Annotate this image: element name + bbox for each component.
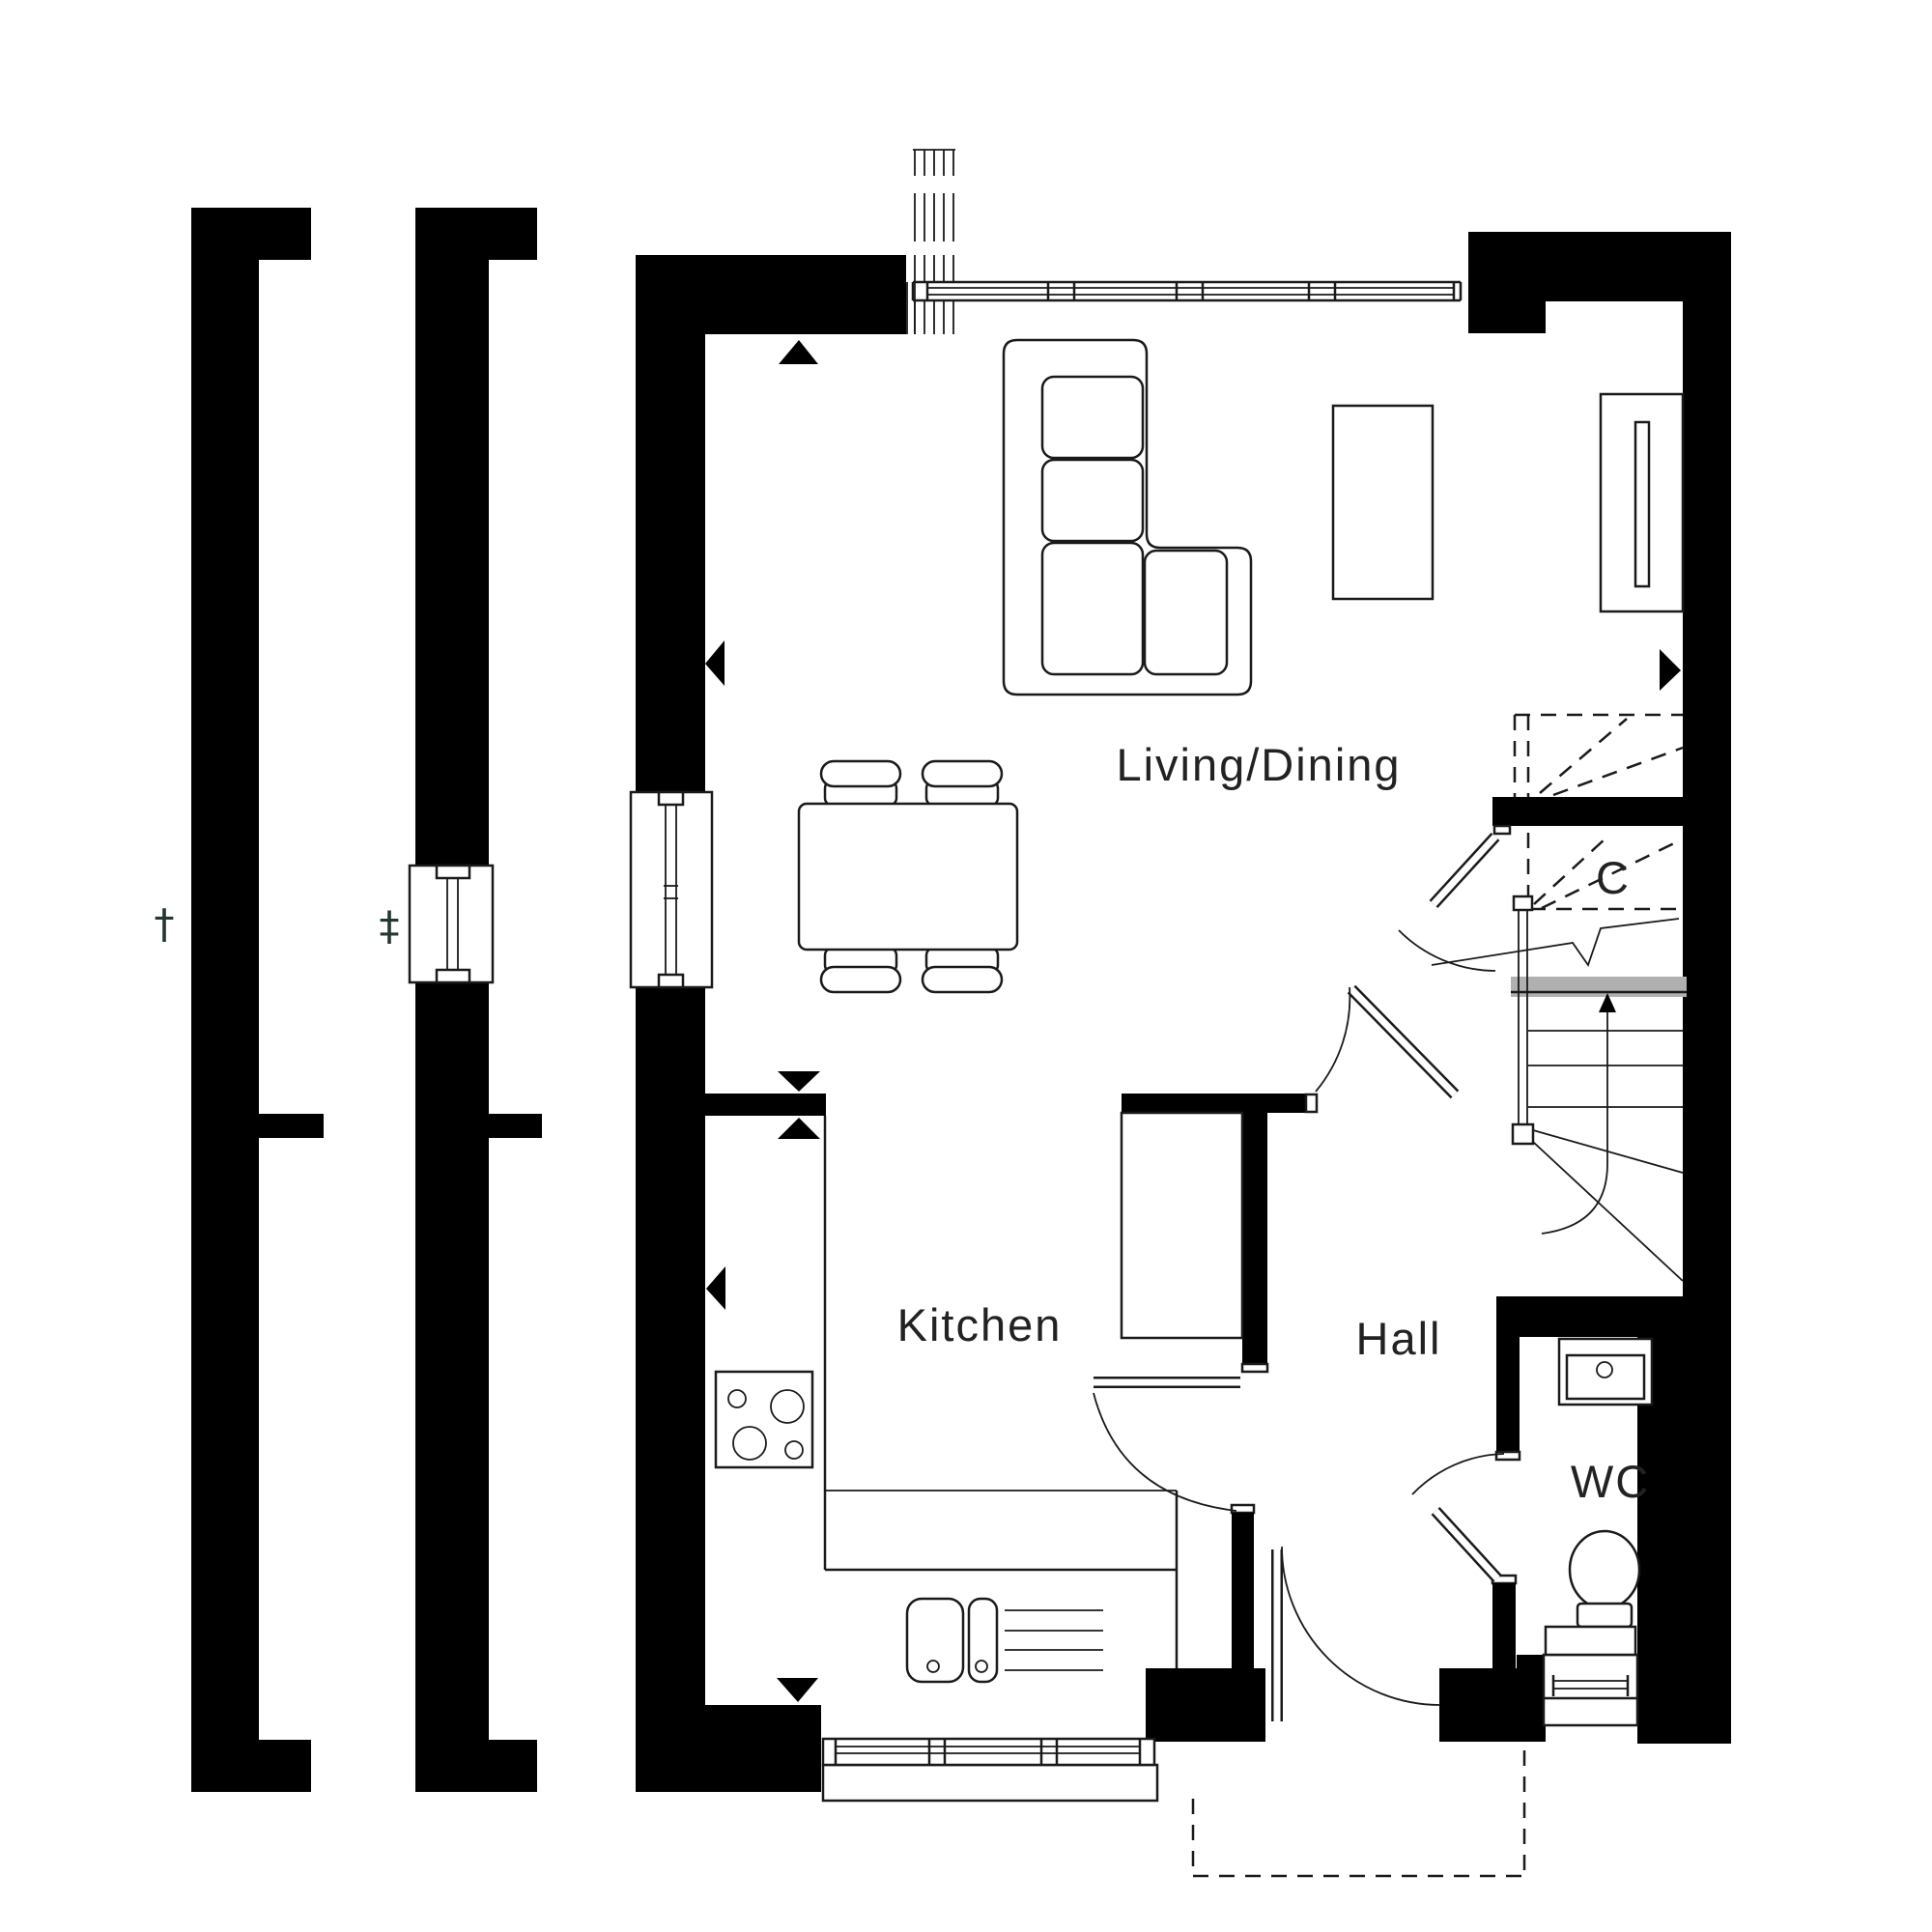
marker-left-wall-lower — [706, 1266, 725, 1310]
marker-left-wall-upper — [705, 640, 724, 686]
media-unit — [1601, 394, 1683, 611]
stair-break-line — [1432, 919, 1679, 965]
label-hall: Hall — [1356, 1313, 1442, 1364]
wc-basin — [1559, 1339, 1652, 1405]
kitchen-sink — [907, 1599, 1103, 1682]
marker-right-wall — [1660, 649, 1681, 691]
stair-walk-line — [1542, 993, 1616, 1234]
party-wall-2 — [410, 208, 542, 1792]
floorplan-page: † ‡ — [0, 0, 1932, 1932]
hall-door — [1316, 987, 1455, 1094]
dagger-symbol: † — [155, 900, 175, 948]
kitchen-tall-unit — [1122, 1113, 1242, 1338]
label-cupboard: C — [1596, 852, 1631, 903]
marker-top-wall — [779, 340, 818, 364]
kitchen-door — [1094, 1382, 1240, 1511]
sofa — [1004, 340, 1251, 695]
label-living-dining: Living/Dining — [1116, 739, 1401, 790]
stair-grey-tread — [1511, 977, 1687, 997]
wall-markers — [705, 340, 1681, 1702]
living-side-window — [631, 792, 712, 987]
party-wall-1 — [191, 208, 324, 1792]
wc-toilet — [1546, 1531, 1639, 1655]
double-dagger-symbol: ‡ — [380, 902, 400, 950]
dining-set — [799, 761, 1017, 992]
kitchen-stub-wall — [705, 1071, 826, 1139]
label-kitchen: Kitchen — [897, 1299, 1063, 1350]
flue-hatch — [913, 150, 955, 334]
marker-bottom-wall — [777, 1678, 818, 1702]
outer-walls — [636, 232, 1731, 1792]
wc-door — [1412, 1454, 1504, 1578]
drainer-lines — [1005, 1610, 1103, 1670]
stair-treads — [1528, 1031, 1683, 1281]
floorplan-drawing: † ‡ — [0, 0, 1932, 1932]
wc-window — [1544, 1655, 1637, 1725]
kitchen-window — [823, 1739, 1157, 1801]
living-door — [1399, 837, 1495, 971]
party-wall-2-window — [410, 866, 493, 982]
living-top-window — [907, 282, 1461, 334]
label-wc: WC — [1571, 1456, 1650, 1507]
coffee-table — [1333, 406, 1433, 599]
front-door — [1277, 1547, 1440, 1721]
hob — [716, 1372, 812, 1467]
dining-table — [799, 804, 1017, 950]
porch-outline — [1193, 1750, 1524, 1876]
